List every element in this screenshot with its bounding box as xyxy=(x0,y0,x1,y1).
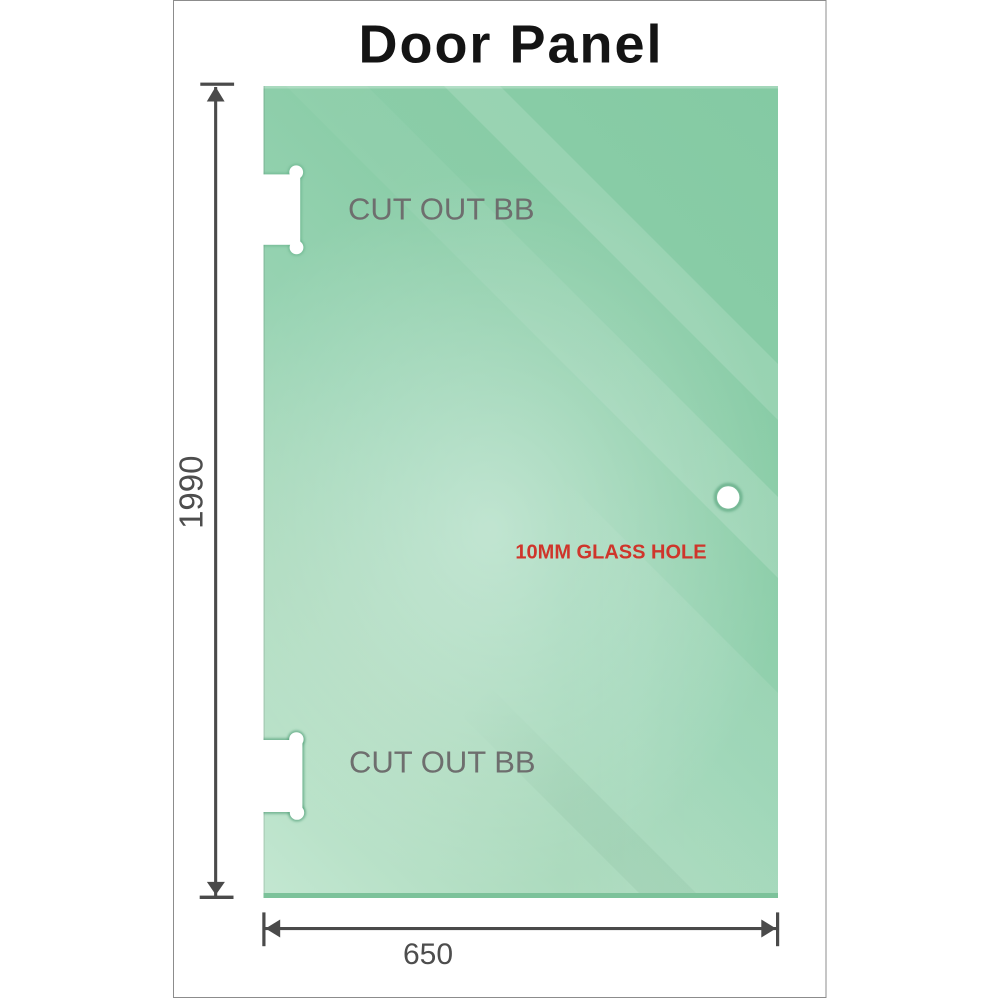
svg-text:1990: 1990 xyxy=(173,455,210,528)
svg-text:CUT OUT BB: CUT OUT BB xyxy=(349,745,536,780)
svg-text:650: 650 xyxy=(403,938,453,971)
svg-text:CUT OUT BB: CUT OUT BB xyxy=(348,192,535,227)
svg-text:Door Panel: Door Panel xyxy=(358,15,663,75)
svg-text:10MM GLASS HOLE: 10MM GLASS HOLE xyxy=(515,542,706,564)
